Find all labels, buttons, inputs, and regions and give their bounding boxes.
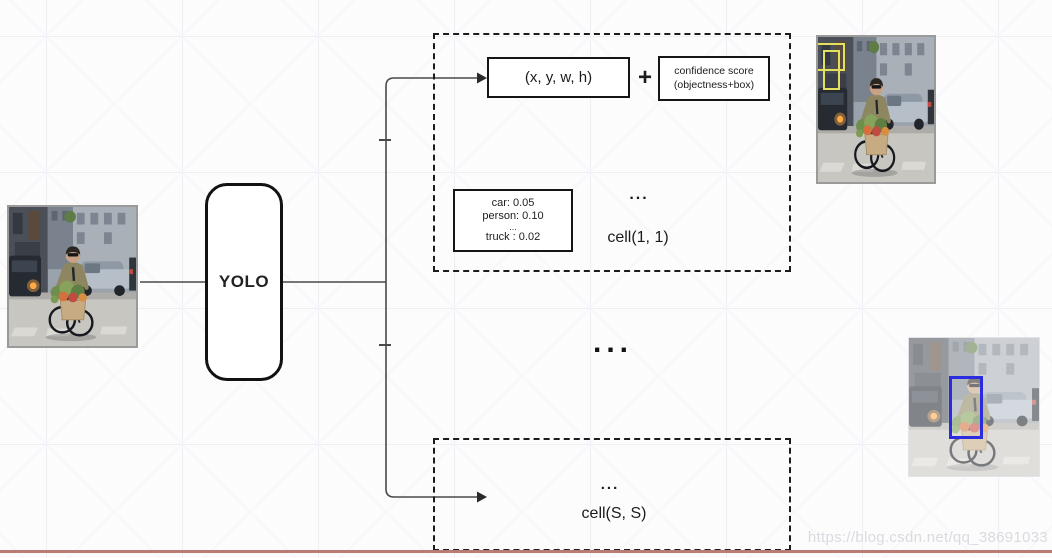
yolo-node: YOLO (205, 183, 283, 381)
cell-S-S-label: cell(S, S) (568, 505, 660, 523)
bbox-output-box: (x, y, w, h) (487, 57, 630, 98)
diagram-canvas: YOLO (x, y, w, h) + confidence score (ob… (0, 0, 1052, 558)
cell-S-S-region (433, 438, 791, 551)
grid-cells-image (816, 35, 936, 184)
cell-1-1-ellipsis: ... (612, 186, 666, 204)
input-image (7, 205, 138, 348)
footer-rule (0, 550, 1052, 553)
confidence-score-box: confidence score (objectness+box) (658, 56, 770, 101)
plus-sign: + (633, 61, 657, 95)
class-score-truck: truck : 0.02 (486, 231, 540, 244)
confidence-line-1: confidence score (674, 65, 753, 79)
class-score-ellipsis: ... (509, 224, 517, 231)
confidence-line-2: (objectness+box) (674, 79, 754, 93)
yolo-label: YOLO (219, 272, 269, 292)
detection-bounding-box (949, 376, 983, 439)
class-score-car: car: 0.05 (492, 197, 535, 210)
cell-1-1-label: cell(1, 1) (592, 229, 684, 247)
cell-S-S-ellipsis: ... (583, 476, 637, 493)
watermark-url: https://blog.csdn.net/qq_38691033 (790, 529, 1048, 546)
cells-ellipsis: ... (570, 326, 656, 360)
bbox-output-label: (x, y, w, h) (525, 69, 592, 86)
detection-image (908, 337, 1040, 477)
yellow-grid-cell-inner (823, 50, 840, 90)
class-scores-box: car: 0.05 person: 0.10 ... truck : 0.02 (453, 189, 573, 252)
